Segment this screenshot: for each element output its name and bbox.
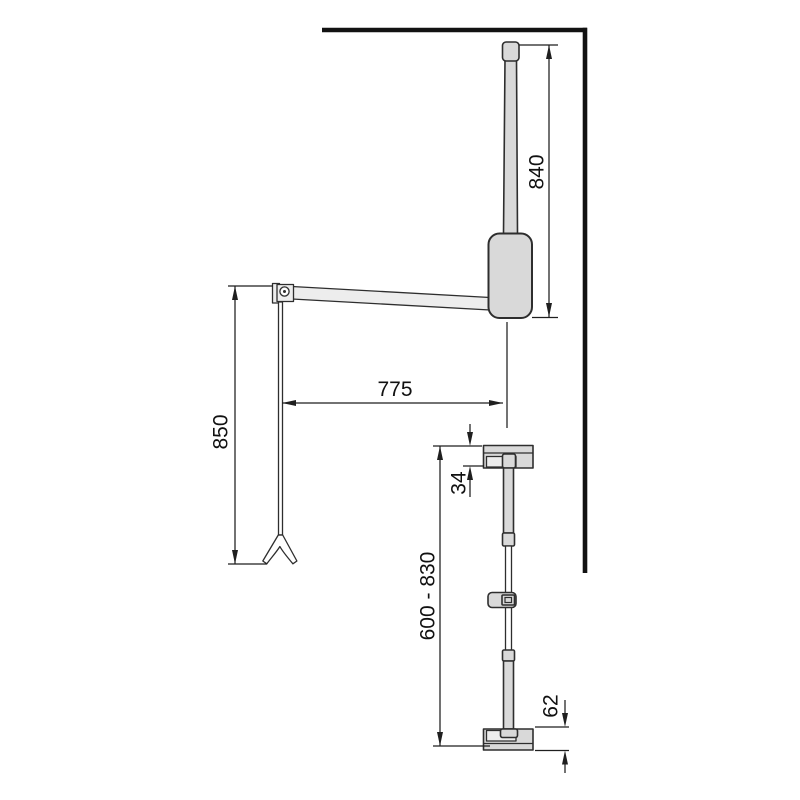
post-top-connector — [503, 454, 516, 468]
dimension-62: 62 — [535, 694, 569, 773]
arrow-up-icon — [437, 446, 443, 460]
dimension-label-840: 840 — [526, 154, 549, 189]
lift-body — [489, 234, 533, 319]
support-arm — [292, 287, 490, 311]
post-upper-tube — [504, 468, 514, 533]
arrow-up-icon — [232, 286, 238, 300]
technical-drawing-canvas: 840 775 850 34 600 - 830 — [0, 0, 800, 800]
dimension-label-62: 62 — [540, 694, 563, 717]
arrow-right-icon — [489, 400, 503, 406]
post-lower-tube — [504, 661, 514, 729]
dimension-label-34: 34 — [448, 471, 471, 495]
post-lower-tube-end — [503, 650, 515, 661]
bracket-screw-center-icon — [283, 290, 286, 293]
pull-rod-assembly — [263, 284, 297, 564]
post-clamp-lock — [502, 595, 515, 605]
arrow-left-icon — [282, 400, 296, 406]
arrow-down-icon — [562, 713, 568, 727]
pull-rod — [279, 302, 283, 535]
fork-handle — [263, 535, 297, 564]
arrow-up-icon — [562, 751, 568, 765]
dimension-850: 850 — [210, 286, 273, 564]
post-upper-tube-end — [503, 533, 515, 546]
dimension-34: 34 — [448, 424, 484, 497]
arrow-up-icon — [546, 45, 552, 59]
dimension-label-600-830: 600 - 830 — [417, 552, 440, 641]
adjustable-post-front-view — [484, 446, 534, 751]
hanger-rod-top-cap — [503, 42, 520, 61]
post-bottom-connector — [501, 729, 518, 738]
hanger-rod — [504, 59, 518, 234]
arrow-down-icon — [546, 303, 552, 317]
dimension-label-775: 775 — [377, 378, 412, 401]
arrow-down-icon — [437, 732, 443, 746]
dimension-label-850: 850 — [210, 414, 233, 449]
arrow-down-icon — [467, 432, 473, 446]
wardrobe-lift-dimension-drawing: 840 775 850 34 600 - 830 — [0, 0, 800, 800]
arrow-down-icon — [232, 550, 238, 564]
dimension-775: 775 — [282, 322, 507, 428]
